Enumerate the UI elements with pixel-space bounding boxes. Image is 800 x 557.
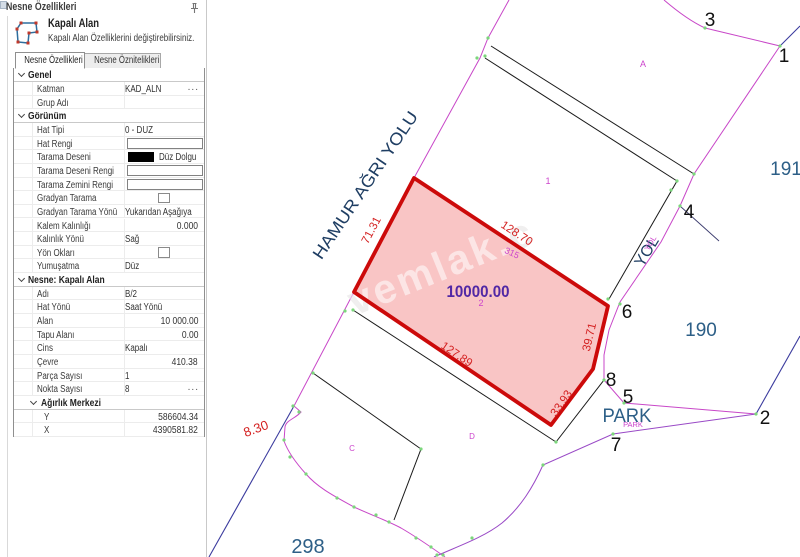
- svg-text:5: 5: [623, 387, 634, 408]
- svg-text:190: 190: [685, 320, 717, 341]
- svg-text:3: 3: [705, 10, 716, 31]
- svg-text:191: 191: [770, 159, 800, 180]
- svg-text:PARK: PARK: [623, 420, 643, 429]
- svg-text:1: 1: [779, 46, 790, 67]
- svg-text:2: 2: [478, 298, 483, 308]
- svg-text:A: A: [640, 59, 646, 69]
- svg-text:7: 7: [611, 435, 622, 456]
- svg-text:8: 8: [606, 370, 617, 391]
- svg-text:2: 2: [760, 408, 771, 429]
- svg-text:C: C: [349, 444, 355, 453]
- svg-text:D: D: [469, 432, 475, 441]
- svg-text:1: 1: [545, 176, 550, 186]
- svg-text:298: 298: [291, 536, 324, 557]
- svg-text:8.30: 8.30: [241, 417, 270, 440]
- svg-text:6: 6: [622, 302, 633, 323]
- svg-text:4: 4: [684, 202, 695, 223]
